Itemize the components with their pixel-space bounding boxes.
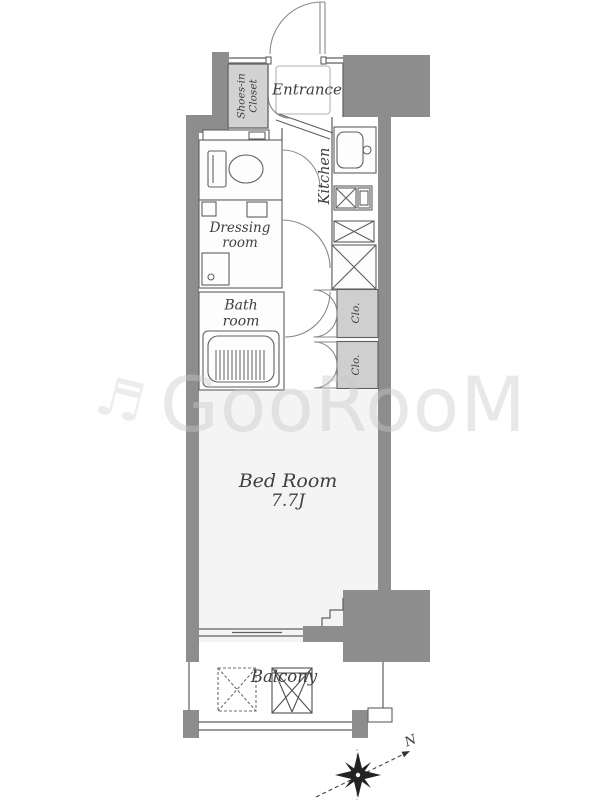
bed-room-size: 7.7J bbox=[239, 492, 338, 511]
dressing-room-line1: Dressing bbox=[210, 221, 271, 236]
closets bbox=[314, 290, 379, 389]
dressing-room-line2: room bbox=[210, 236, 271, 251]
dressing-room-label: Dressing room bbox=[210, 221, 271, 251]
closet-lower-label: Clo. bbox=[351, 355, 363, 376]
kitchen-label: Kitchen bbox=[317, 148, 333, 205]
sink-icon bbox=[334, 127, 376, 173]
bath-room-line1: Bath bbox=[223, 298, 260, 314]
balcony-label: Balcony bbox=[251, 668, 317, 686]
toilet-door-arc bbox=[282, 150, 320, 188]
shoes-in-closet-label: Shoes-in Closet bbox=[236, 73, 260, 119]
toilet-room bbox=[199, 130, 282, 200]
entrance-label: Entrance bbox=[272, 82, 342, 99]
counter-icon bbox=[334, 221, 374, 242]
bed-room-label: Bed Room 7.7J bbox=[239, 471, 338, 511]
refrigerator-space-icon bbox=[332, 245, 376, 289]
bath-door-arc bbox=[285, 292, 330, 337]
shoes-in-closet-line2: Closet bbox=[248, 73, 260, 119]
closet-upper-label: Clo. bbox=[351, 303, 363, 324]
closet-door-arcs bbox=[314, 290, 338, 388]
stove-icon bbox=[334, 186, 372, 210]
bed-room-name: Bed Room bbox=[239, 471, 338, 492]
bath-room-line2: room bbox=[223, 314, 260, 330]
compass-icon bbox=[316, 749, 410, 800]
bath-room-label: Bath room bbox=[223, 298, 260, 329]
entrance-step bbox=[268, 66, 333, 139]
entrance-door bbox=[266, 2, 326, 64]
dressing-door-arc bbox=[282, 220, 330, 268]
floorplan-canvas: Shoes-in Closet Entrance Kitchen Dressin… bbox=[0, 0, 600, 800]
shoes-in-closet-line1: Shoes-in bbox=[236, 73, 248, 119]
kitchen-fixtures bbox=[332, 127, 376, 289]
